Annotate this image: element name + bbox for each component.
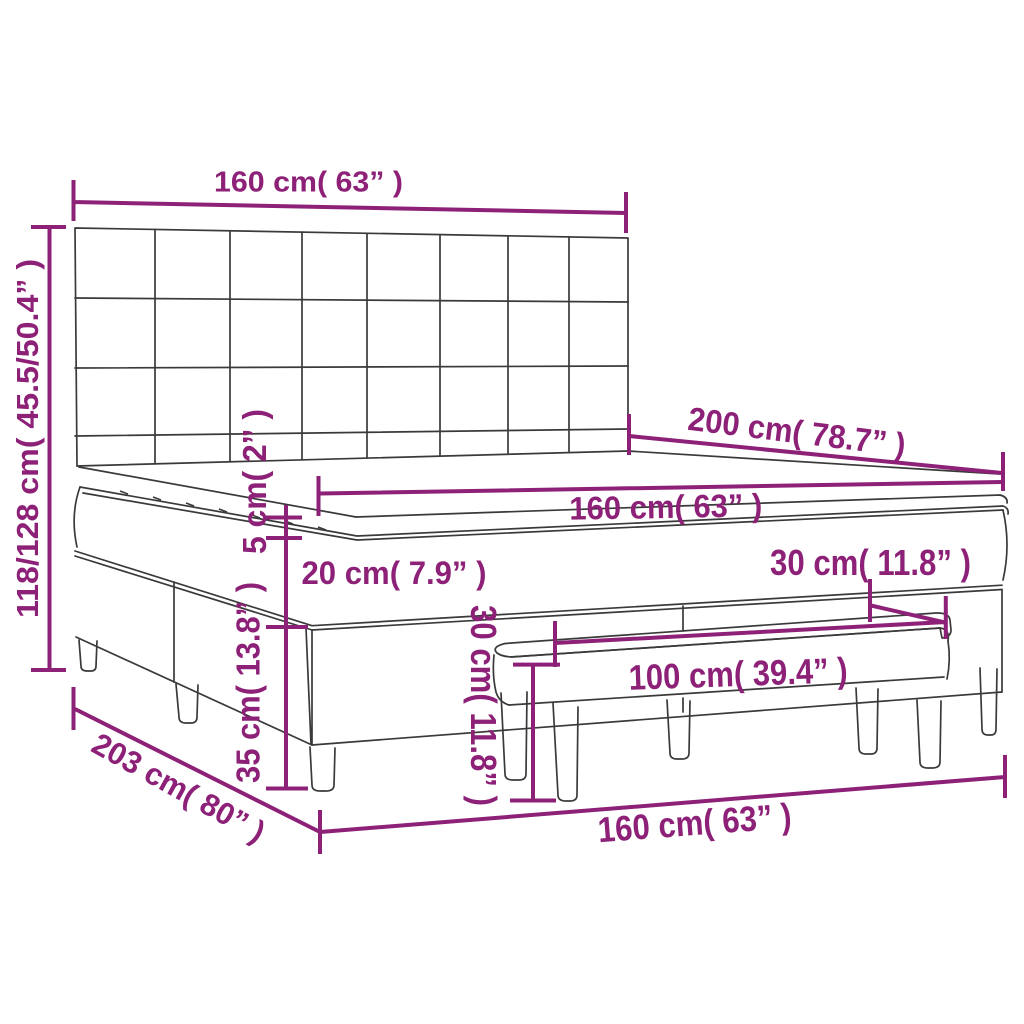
svg-text:30 cm( 11.8” ): 30 cm( 11.8” ) xyxy=(770,542,971,583)
svg-text:160 cm( 63” ): 160 cm( 63” ) xyxy=(596,796,792,850)
svg-text:160 cm( 63” ): 160 cm( 63” ) xyxy=(214,167,403,199)
svg-text:20 cm( 7.9” ): 20 cm( 7.9” ) xyxy=(302,555,487,591)
svg-text:118/128 cm( 45.5/50.4” ): 118/128 cm( 45.5/50.4” ) xyxy=(10,259,45,618)
svg-text:30 cm( 11.8” ): 30 cm( 11.8” ) xyxy=(463,605,504,806)
svg-text:100 cm( 39.4” ): 100 cm( 39.4” ) xyxy=(628,650,848,698)
svg-text:160 cm( 63” ): 160 cm( 63” ) xyxy=(569,487,763,526)
svg-text:5 cm( 2” ): 5 cm( 2” ) xyxy=(236,409,273,554)
svg-text:35 cm( 13.8” ): 35 cm( 13.8” ) xyxy=(230,582,267,783)
